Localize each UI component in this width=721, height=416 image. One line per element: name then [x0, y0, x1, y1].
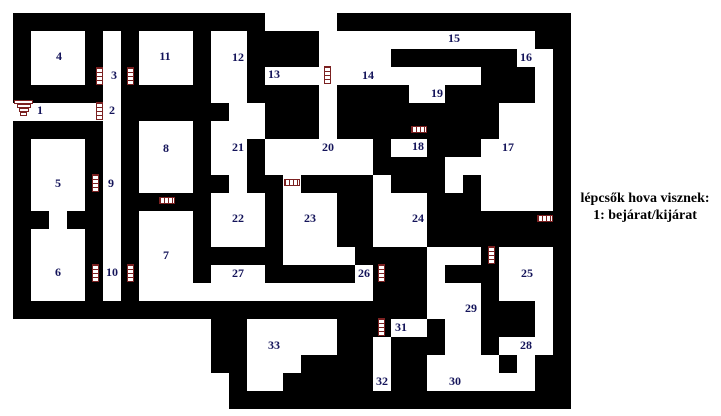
wall-segment [121, 247, 139, 265]
wall-segment [13, 301, 427, 319]
room-label: 21 [232, 141, 244, 153]
ladder-icon [324, 66, 331, 84]
wall-segment [121, 283, 139, 301]
wall-segment [265, 193, 283, 211]
wall-segment [265, 121, 319, 139]
wall-segment [247, 157, 265, 175]
wall-segment [85, 157, 103, 175]
ladder-icon [92, 264, 99, 282]
wall-segment [265, 265, 355, 283]
wall-segment [13, 49, 31, 67]
wall-segment [337, 13, 571, 31]
wall-segment [247, 139, 265, 157]
wall-segment [121, 211, 139, 229]
wall-segment [355, 247, 427, 265]
wall-segment [337, 229, 373, 247]
room-label: 32 [376, 375, 388, 387]
wall-segment [121, 49, 139, 67]
wall-segment [391, 175, 445, 193]
wall-segment [121, 121, 139, 139]
wall-segment [553, 103, 571, 121]
wall-segment [301, 175, 373, 193]
wall-segment [229, 391, 571, 409]
wall-segment [553, 175, 571, 193]
wall-segment [13, 121, 103, 139]
wall-segment [535, 31, 571, 49]
wall-segment [13, 157, 31, 175]
legend: lépcsők hova visznek: 1: bejárat/kijárat [572, 190, 718, 224]
room-label: 6 [55, 266, 61, 278]
wall-segment [337, 103, 499, 121]
wall-segment [535, 373, 571, 391]
wall-segment [193, 265, 211, 283]
entrance-stairs-icon [20, 112, 27, 116]
wall-segment [247, 175, 283, 193]
room-label: 12 [232, 51, 244, 63]
ladder-icon [159, 197, 175, 204]
wall-segment [193, 49, 211, 67]
room-label: 4 [56, 50, 62, 62]
wall-segment [481, 67, 535, 85]
wall-segment [247, 85, 319, 103]
wall-segment [391, 355, 427, 373]
room-label: 30 [449, 375, 461, 387]
wall-segment [121, 139, 139, 157]
ladder-icon [537, 215, 553, 222]
wall-segment [121, 229, 139, 247]
room-label: 3 [111, 69, 117, 81]
room-label: 24 [412, 212, 424, 224]
wall-segment [265, 103, 319, 121]
room-label: 10 [106, 266, 118, 278]
wall-segment [427, 229, 571, 247]
wall-segment [85, 247, 103, 265]
room-label: 15 [448, 32, 460, 44]
wall-segment [13, 175, 31, 193]
wall-segment [553, 67, 571, 85]
wall-segment [265, 229, 283, 247]
wall-segment [85, 139, 103, 157]
legend-title: lépcsők hova visznek: [572, 190, 718, 207]
wall-segment [121, 157, 139, 175]
wall-segment [553, 157, 571, 175]
wall-segment [13, 247, 31, 265]
wall-segment [247, 31, 319, 49]
wall-segment [337, 193, 373, 211]
wall-segment [85, 229, 103, 247]
room-label: 18 [412, 140, 424, 152]
wall-segment [445, 265, 499, 283]
wall-segment [13, 265, 31, 283]
wall-segment [427, 193, 481, 211]
wall-segment [445, 85, 535, 103]
wall-segment [373, 283, 427, 301]
wall-segment [85, 31, 103, 49]
wall-segment [13, 139, 31, 157]
ladder-icon [92, 174, 99, 192]
wall-segment [13, 67, 31, 85]
room-label: 5 [55, 177, 61, 189]
wall-segment [373, 157, 445, 175]
room-label: 7 [163, 249, 169, 261]
wall-segment [121, 31, 139, 49]
wall-segment [193, 247, 283, 265]
room-label: 2 [109, 104, 115, 116]
wall-segment [553, 49, 571, 67]
ladder-icon [127, 67, 134, 85]
wall-segment [553, 265, 571, 283]
dungeon-map: 1234567891011121314151617181920212223242… [0, 0, 721, 416]
ladder-icon [96, 67, 103, 85]
wall-segment [13, 229, 31, 247]
wall-segment [211, 337, 247, 355]
wall-segment [481, 319, 535, 337]
wall-segment [211, 355, 247, 373]
ladder-icon [284, 179, 300, 186]
wall-segment [391, 337, 445, 355]
room-label: 28 [520, 339, 532, 351]
room-label: 20 [322, 141, 334, 153]
wall-segment [193, 157, 211, 175]
wall-segment [499, 355, 517, 373]
wall-segment [85, 193, 103, 211]
wall-segment [427, 319, 445, 337]
room-label: 1 [37, 104, 43, 116]
ladder-icon [127, 264, 134, 282]
wall-segment [337, 85, 409, 103]
wall-segment [13, 283, 31, 301]
ladder-icon [378, 264, 385, 282]
wall-segment [121, 103, 229, 121]
wall-segment [337, 337, 373, 355]
room-label: 31 [395, 321, 407, 333]
room-label: 13 [268, 68, 280, 80]
room-label: 14 [362, 69, 374, 81]
wall-segment [193, 67, 211, 85]
wall-segment [553, 301, 571, 319]
wall-segment [193, 31, 211, 49]
ladder-icon [488, 246, 495, 264]
wall-segment [193, 229, 211, 247]
room-label: 19 [431, 87, 443, 99]
room-label: 22 [232, 212, 244, 224]
wall-segment [85, 283, 103, 301]
wall-segment [373, 139, 391, 157]
wall-segment [247, 49, 319, 67]
wall-segment [481, 337, 499, 355]
wall-segment [67, 211, 103, 229]
wall-segment [535, 355, 571, 373]
wall-segment [463, 175, 481, 193]
wall-segment [553, 139, 571, 157]
room-label: 11 [159, 50, 170, 62]
room-label: 27 [232, 267, 244, 279]
wall-segment [283, 373, 373, 391]
wall-segment [391, 373, 427, 391]
wall-segment [553, 247, 571, 265]
wall-segment [391, 49, 517, 67]
wall-segment [13, 31, 31, 49]
wall-segment [193, 211, 211, 229]
wall-segment [193, 121, 211, 139]
wall-segment [481, 283, 499, 301]
wall-segment [13, 211, 49, 229]
wall-segment [247, 67, 265, 85]
room-label: 17 [502, 141, 514, 153]
wall-segment [427, 139, 481, 157]
wall-segment [481, 301, 535, 319]
wall-segment [121, 85, 211, 103]
wall-segment [553, 283, 571, 301]
room-label: 8 [163, 142, 169, 154]
legend-entry: 1: bejárat/kijárat [572, 207, 718, 224]
ladder-icon [411, 126, 427, 133]
wall-segment [13, 13, 265, 31]
room-label: 16 [520, 51, 532, 63]
wall-segment [337, 211, 373, 229]
wall-segment [211, 319, 247, 337]
wall-segment [553, 121, 571, 139]
wall-segment [301, 355, 373, 373]
wall-segment [553, 85, 571, 103]
wall-segment [13, 193, 31, 211]
wall-segment [553, 319, 571, 337]
room-label: 33 [268, 339, 280, 351]
room-label: 29 [465, 302, 477, 314]
wall-segment [193, 175, 229, 193]
room-label: 9 [108, 177, 114, 189]
room-label: 25 [521, 267, 533, 279]
wall-segment [229, 373, 247, 391]
room-label: 26 [358, 267, 370, 279]
wall-segment [193, 139, 211, 157]
wall-segment [85, 49, 103, 67]
wall-segment [121, 175, 139, 193]
wall-segment [265, 211, 283, 229]
ladder-icon [96, 102, 103, 120]
wall-segment [553, 193, 571, 211]
wall-segment [553, 337, 571, 355]
room-label: 23 [304, 212, 316, 224]
ladder-icon [378, 318, 385, 336]
